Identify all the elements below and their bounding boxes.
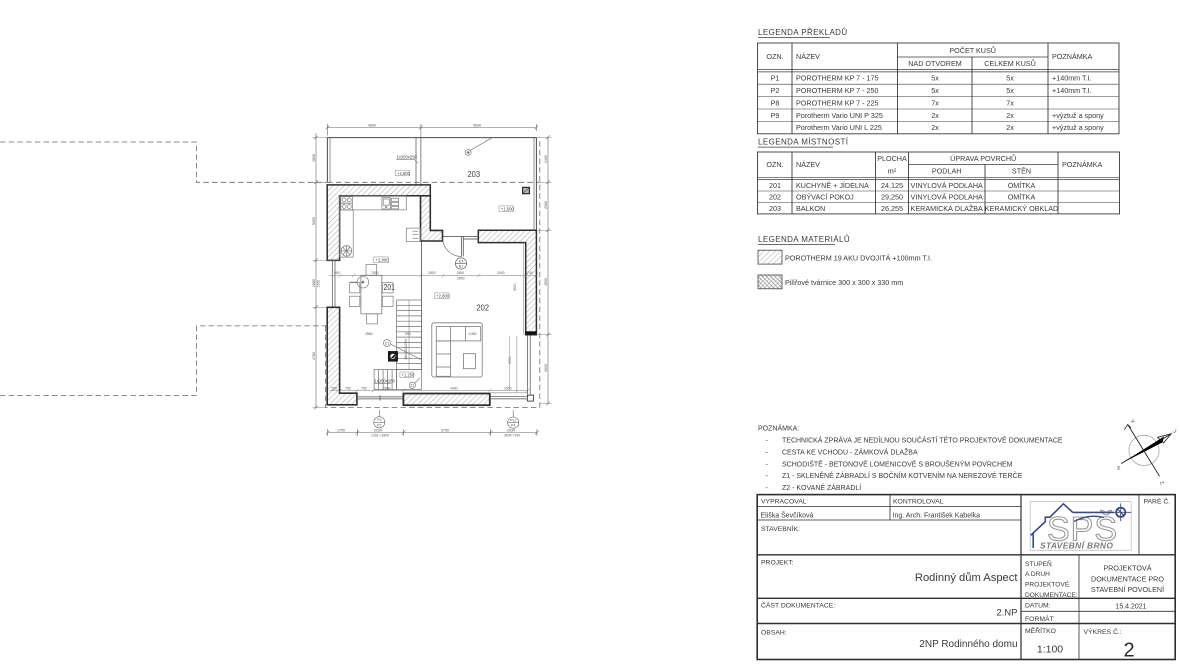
svg-text:B1: B1 xyxy=(459,265,463,269)
svg-text:5x: 5x xyxy=(1006,74,1014,83)
svg-text:4500: 4500 xyxy=(513,283,517,291)
svg-text:+2,800: +2,800 xyxy=(376,258,390,263)
svg-text:POROTHERM KP 7 - 225: POROTHERM KP 7 - 225 xyxy=(796,98,879,107)
svg-text:POROTHERM KP 7 - 175: POROTHERM KP 7 - 175 xyxy=(796,74,879,83)
svg-text:KERAMICKÁ DLAŽBA: KERAMICKÁ DLAŽBA xyxy=(911,204,983,213)
svg-text:2030: 2030 xyxy=(507,428,515,432)
svg-text:POROTHERM 19 AKU DVOJITÁ +100m: POROTHERM 19 AKU DVOJITÁ +100mm T.I. xyxy=(785,253,932,262)
svg-text:K3: K3 xyxy=(459,259,463,263)
svg-text:+140mm T.I.: +140mm T.I. xyxy=(1052,86,1092,95)
svg-text:203: 203 xyxy=(769,204,781,213)
svg-text:29,250: 29,250 xyxy=(881,193,903,202)
svg-text:STAVEBNÍ POVOLENÍ: STAVEBNÍ POVOLENÍ xyxy=(1091,585,1164,594)
svg-text:+2,800: +2,800 xyxy=(436,294,450,299)
svg-text:2900: 2900 xyxy=(457,277,465,281)
svg-text:KERAMICKÝ OBKLAD: KERAMICKÝ OBKLAD xyxy=(985,204,1059,213)
svg-text:7x: 7x xyxy=(1006,98,1014,107)
svg-text:5x: 5x xyxy=(931,74,939,83)
svg-text:STĚN: STĚN xyxy=(1012,167,1031,176)
svg-text:P1: P1 xyxy=(771,74,780,83)
svg-text:P11: P11 xyxy=(510,419,516,423)
svg-text:2030: 2030 xyxy=(374,428,382,432)
svg-text:OZN.: OZN. xyxy=(766,52,783,61)
svg-text:+1,500: +1,500 xyxy=(501,207,515,212)
svg-text:1x250x250: 1x250x250 xyxy=(396,154,417,159)
svg-text:1:100: 1:100 xyxy=(1037,643,1063,655)
svg-text:2500: 2500 xyxy=(508,356,512,364)
svg-text:Rodinný dům Aspect: Rodinný dům Aspect xyxy=(915,572,1019,584)
svg-text:+výztuž a spony: +výztuž a spony xyxy=(1052,123,1104,132)
svg-text:2: 2 xyxy=(1123,640,1134,662)
svg-text:STAVEBNÍK:: STAVEBNÍK: xyxy=(761,524,800,533)
svg-text:STUPEŇ: STUPEŇ xyxy=(1025,559,1052,568)
svg-text:3630: 3630 xyxy=(544,364,548,372)
svg-text:2560: 2560 xyxy=(383,386,391,390)
svg-text:NAD OTVOREM: NAD OTVOREM xyxy=(908,59,962,68)
svg-text:2x: 2x xyxy=(931,123,939,132)
svg-text:Z1 - SKLENĚNÉ ZÁBRADLÍ S BOČNÍ: Z1 - SKLENĚNÉ ZÁBRADLÍ S BOČNÍM KOTVENÍM… xyxy=(782,471,1023,480)
svg-text:STAVEBNÍ BRNO: STAVEBNÍ BRNO xyxy=(1040,541,1113,551)
svg-text:3750: 3750 xyxy=(441,428,449,432)
svg-text:POČET KUSŮ: POČET KUSŮ xyxy=(949,46,996,55)
svg-text:26,255: 26,255 xyxy=(881,204,903,213)
svg-text:A DRUH: A DRUH xyxy=(1025,571,1050,578)
svg-text:PROJEKTOVÁ: PROJEKTOVÁ xyxy=(1103,564,1151,573)
svg-text:+2,800: +2,800 xyxy=(397,171,411,176)
svg-text:4,580: 4,580 xyxy=(469,332,477,336)
svg-text:4690: 4690 xyxy=(368,123,376,127)
svg-text:2000: 2000 xyxy=(544,201,548,209)
svg-text:SCHODIŠTĚ - BETONOVÉ LOMENICOV: SCHODIŠTĚ - BETONOVÉ LOMENICOVÉ S BROUŠE… xyxy=(782,459,1013,468)
svg-text:ČÁST DOKUMENTACE:: ČÁST DOKUMENTACE: xyxy=(761,601,835,610)
svg-text:PLOCHA: PLOCHA xyxy=(877,154,907,163)
svg-text:Z1: Z1 xyxy=(410,384,414,388)
svg-text:1520: 1520 xyxy=(317,280,321,287)
svg-text:2080: 2080 xyxy=(312,279,316,287)
svg-text:OBÝVACÍ POKOJ: OBÝVACÍ POKOJ xyxy=(796,193,854,202)
svg-text:2NP Rodinného domu: 2NP Rodinného domu xyxy=(919,639,1017,650)
svg-text:Ing. Arch. František Kabelka: Ing. Arch. František Kabelka xyxy=(893,513,981,520)
svg-text:+výztuž a spony: +výztuž a spony xyxy=(1052,111,1104,120)
svg-text:1750: 1750 xyxy=(337,428,345,432)
svg-text:Eliška Ševčíková: Eliška Ševčíková xyxy=(761,511,814,520)
svg-text:Z2 - KOVANÉ ZÁBRADLÍ: Z2 - KOVANÉ ZÁBRADLÍ xyxy=(782,483,861,492)
svg-text:POROTHERM KP 7 - 250: POROTHERM KP 7 - 250 xyxy=(796,86,879,95)
svg-text:-: - xyxy=(766,461,769,468)
svg-text:2400: 2400 xyxy=(544,155,548,163)
svg-text:1500: 1500 xyxy=(504,386,512,390)
svg-text:2.NP: 2.NP xyxy=(996,608,1017,619)
svg-text:3400: 3400 xyxy=(450,386,458,390)
svg-text:-: - xyxy=(766,449,769,456)
svg-text:CESTA KE VCHODU - ZÁMKOVÁ DLAŽ: CESTA KE VCHODU - ZÁMKOVÁ DLAŽBA xyxy=(782,447,918,456)
svg-text:1500: 1500 xyxy=(457,271,465,275)
svg-text:CELKEM KUSŮ: CELKEM KUSŮ xyxy=(984,59,1036,68)
svg-text:202: 202 xyxy=(769,193,781,202)
svg-text:LEGENDA PŘEKLADŮ: LEGENDA PŘEKLADŮ xyxy=(758,28,848,37)
svg-text:POZNÁMKA: POZNÁMKA xyxy=(1052,52,1093,61)
svg-text:24,125: 24,125 xyxy=(881,181,903,190)
svg-text:ÚPRAVA POVRCHŮ: ÚPRAVA POVRCHŮ xyxy=(950,154,1016,163)
svg-text:18x250x250: 18x250x250 xyxy=(404,339,408,360)
svg-text:550: 550 xyxy=(334,271,340,275)
svg-text:5x: 5x xyxy=(931,86,939,95)
svg-text:POZNÁMKA:: POZNÁMKA: xyxy=(758,424,799,433)
svg-text:1x250x250: 1x250x250 xyxy=(374,378,395,383)
svg-text:5x: 5x xyxy=(1006,86,1014,95)
svg-text:KONTROLOVAL: KONTROLOVAL xyxy=(893,499,944,506)
svg-text:2x: 2x xyxy=(931,111,939,120)
svg-text:2560: 2560 xyxy=(365,332,373,336)
svg-text:OMÍTKA: OMÍTKA xyxy=(1008,181,1036,190)
svg-text:VINYLOVÁ PODLAHA: VINYLOVÁ PODLAHA xyxy=(911,193,984,202)
svg-text:2x: 2x xyxy=(1006,123,1014,132)
svg-text:P2: P2 xyxy=(771,86,780,95)
svg-text:FORMÁT:: FORMÁT: xyxy=(1025,614,1055,623)
svg-text:NÁZEV: NÁZEV xyxy=(796,52,820,61)
svg-text:VYPRACOVAL: VYPRACOVAL xyxy=(761,499,807,506)
svg-text:PARÉ Č.: PARÉ Č. xyxy=(1144,497,1171,506)
svg-text:P8: P8 xyxy=(771,98,780,107)
svg-text:202: 202 xyxy=(477,303,490,312)
svg-text:7x: 7x xyxy=(931,98,939,107)
svg-text:900: 900 xyxy=(405,332,411,336)
svg-text:LEGENDA MATERIÁLŮ: LEGENDA MATERIÁLŮ xyxy=(758,235,850,244)
svg-text:15.4.2021: 15.4.2021 xyxy=(1115,604,1146,611)
svg-text:PROJEKT:: PROJEKT: xyxy=(761,559,794,566)
svg-text:-: - xyxy=(766,473,769,480)
svg-text:750: 750 xyxy=(345,386,351,390)
svg-text:DATUM:: DATUM: xyxy=(1025,602,1051,609)
svg-text:TECHNICKÁ ZPRÁVA JE NEDÍLNOU S: TECHNICKÁ ZPRÁVA JE NEDÍLNOU SOUČÁSTÍ TÉ… xyxy=(782,436,1063,445)
svg-text:P4: P4 xyxy=(511,424,515,428)
svg-text:POZNÁMKA: POZNÁMKA xyxy=(1062,160,1103,169)
svg-text:PODLAH: PODLAH xyxy=(932,167,962,176)
svg-text:MĚŘÍTKO: MĚŘÍTKO xyxy=(1025,626,1056,635)
svg-text:1292 +1500: 1292 +1500 xyxy=(371,434,389,438)
svg-text:5050: 5050 xyxy=(312,217,316,225)
svg-text:PROJEKTOVÉ: PROJEKTOVÉ xyxy=(1025,580,1070,589)
svg-text:4780: 4780 xyxy=(312,352,316,360)
svg-text:J: J xyxy=(1172,428,1177,435)
svg-text:VÝKRES Č.:: VÝKRES Č.: xyxy=(1084,627,1122,636)
svg-text:+140mm T.I.: +140mm T.I. xyxy=(1052,74,1092,83)
svg-text:750: 750 xyxy=(361,386,367,390)
svg-text:P2: P2 xyxy=(377,423,381,427)
svg-text:7500: 7500 xyxy=(371,271,379,275)
svg-text:4500: 4500 xyxy=(544,278,548,286)
svg-text:740: 740 xyxy=(527,271,533,275)
svg-text:203: 203 xyxy=(468,170,481,179)
svg-text:DOKUMENTACE:: DOKUMENTACE: xyxy=(1025,592,1078,599)
svg-text:2x: 2x xyxy=(1006,111,1014,120)
svg-text:OBSAH:: OBSAH: xyxy=(761,629,787,636)
svg-text:201: 201 xyxy=(769,181,781,190)
svg-text:-: - xyxy=(766,438,769,445)
svg-text:S: S xyxy=(1115,465,1121,472)
svg-text:Porotherm Vario UNI L 225: Porotherm Vario UNI L 225 xyxy=(796,123,882,132)
svg-text:2800: 2800 xyxy=(312,154,316,162)
svg-text:3604 +700: 3604 +700 xyxy=(504,434,520,438)
svg-text:-: - xyxy=(766,485,769,492)
svg-text:V: V xyxy=(1129,419,1136,426)
svg-text:NÁZEV: NÁZEV xyxy=(796,160,820,169)
svg-text:550: 550 xyxy=(332,386,338,390)
svg-text:OZN.: OZN. xyxy=(766,160,783,169)
svg-text:Z: Z xyxy=(1158,480,1165,486)
svg-text:5690: 5690 xyxy=(473,123,481,127)
svg-text:201: 201 xyxy=(384,283,396,292)
svg-text:LEGENDA MÍSTNOSTÍ: LEGENDA MÍSTNOSTÍ xyxy=(758,138,849,147)
svg-text:m²: m² xyxy=(888,167,897,176)
svg-text:+1,250: +1,250 xyxy=(402,373,416,378)
svg-text:P9: P9 xyxy=(771,111,780,120)
svg-text:BALKON: BALKON xyxy=(796,204,825,213)
svg-text:VINYLOVÁ PODLAHA: VINYLOVÁ PODLAHA xyxy=(911,181,984,190)
svg-text:1800: 1800 xyxy=(428,271,436,275)
svg-text:Porotherm Vario UNI P 325: Porotherm Vario UNI P 325 xyxy=(796,111,883,120)
svg-text:Pilířové tvárnice 300 x 300 x: Pilířové tvárnice 300 x 300 x 330 mm xyxy=(785,278,903,287)
svg-text:Z1: Z1 xyxy=(385,342,389,346)
svg-text:OMÍTKA: OMÍTKA xyxy=(1008,193,1036,202)
svg-text:KUCHYNĚ + JÍDELNA: KUCHYNĚ + JÍDELNA xyxy=(796,181,869,190)
svg-text:P3: P3 xyxy=(377,418,381,422)
svg-text:DOKUMENTACE PRO: DOKUMENTACE PRO xyxy=(1091,574,1164,583)
svg-text:2000: 2000 xyxy=(497,271,505,275)
